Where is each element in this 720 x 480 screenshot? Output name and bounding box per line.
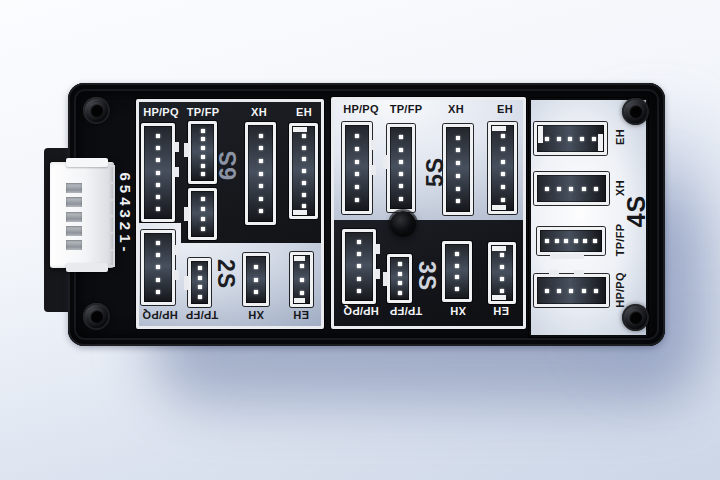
pin-dot [259,184,263,188]
pin-dot [201,146,205,150]
pin-dot [201,164,205,168]
label-5s-eh: EH [497,103,513,115]
pin-dot [355,134,359,138]
label-5s-tpfp: TP/FP [390,103,423,115]
pin-dot [501,172,505,176]
pin-dot [564,239,568,243]
pin-dot [198,285,202,289]
pin-dot [302,146,306,150]
pin-dot [545,289,549,293]
connector-3s-tpfp [387,254,412,303]
pin-dot [594,187,598,191]
pin-dot [156,290,160,294]
pin-dot [569,289,573,293]
pin-dot [456,174,460,178]
pin-dot [455,252,459,256]
pin-dot [201,217,205,221]
pin-dot [501,147,505,151]
connector-5s-hppq [342,122,372,214]
pin-dot [355,198,359,202]
pin-dot [156,207,160,211]
label-5s-xh: XH [448,103,464,115]
pin-dot [501,185,505,189]
pin-dot [302,181,306,185]
pin-dot [399,184,403,188]
pin-dot [66,240,82,250]
pin-dot [302,204,306,208]
pin-dot [500,253,504,257]
label-2s-xh: XH [248,309,264,321]
pin-dot [355,185,359,189]
pin-dot [201,137,205,141]
pin-dot [594,289,598,293]
pin-dot [593,239,597,243]
pin-dot [456,136,460,140]
pin-dot [66,226,82,236]
pin-dot [201,129,205,133]
pin-dot [201,227,205,231]
connector-6s-hppq [141,123,175,222]
pin-dot [156,146,160,150]
pin-dot [555,239,559,243]
pin-dot [300,278,304,282]
pin-dot [300,291,304,295]
connector-6s-tpfp-a [188,121,217,184]
pin-dot [302,157,306,161]
section-label-5s: 5S [422,157,449,187]
screw-top-left [83,97,110,124]
pin-dot [398,281,402,285]
pin-dot [66,183,82,193]
pin-dot [66,197,82,207]
pin-dot [399,197,403,201]
pin-dot [156,195,160,199]
pin-dot [254,278,258,282]
pin-dot [355,160,359,164]
label-4s-eh: EH [614,129,626,145]
balance-output-slots [66,183,82,250]
label-4s-hppq: HP/PQ [614,272,626,308]
section-label-6s: 6S [215,150,242,180]
pin-dot [456,161,460,165]
connector-2s-xh [243,253,269,306]
label-3s-xh: XH [450,305,466,317]
pin-dot [259,134,263,138]
connector-6s-eh [289,123,318,219]
section-label-4s: 4S [622,195,651,228]
connector-4s-xh [534,172,609,205]
connector-3s-eh [488,242,516,304]
pin-dot [545,187,549,191]
connector-6s-xh [245,122,276,225]
pin-dot [557,137,561,141]
pin-dot [500,277,504,281]
pin-dot [456,199,460,203]
pin-dot [399,160,403,164]
connector-3s-hppq [342,229,376,304]
pin-dot [357,252,361,256]
pin-dot [398,272,402,276]
pin-dot [259,146,263,150]
pin-dot [399,135,403,139]
label-6s-xh: XH [251,106,267,118]
pin-dot [254,290,258,294]
pin-dot [198,295,202,299]
label-3s-hppq: HP/PQ [343,305,379,317]
pin-dot [582,187,586,191]
pin-dot [582,289,586,293]
pin-dot [399,148,403,152]
connector-3s-xh [442,241,472,302]
label-6s-hppq: HP/PQ [143,106,179,118]
connector-4s-tpfp [537,227,605,255]
pin-dot [455,287,459,291]
connector-4s-hppq [534,274,609,307]
pin-dot [259,209,263,213]
connector-2s-hppq [141,230,175,305]
pin-dot [455,264,459,268]
pin-dot [399,172,403,176]
pin-dot [156,158,160,162]
label-2s-hppq: HP/PQ [142,309,178,321]
label-4s-tpfp: TP/FP [614,224,626,257]
pin-dot [569,187,573,191]
pin-dot [456,187,460,191]
pin-dot [302,169,306,173]
pin-dot [156,171,160,175]
pin-dot [500,289,504,293]
panel-5s-3s: HP/PQ TP/FP XH EH 5S 3S HP/PQ TP/FP XH E… [331,97,526,329]
balance-output-connector [50,162,114,268]
product-photo-scene: 654321- HP/PQ TP/FP XH EH 6S 2S HP/PQ TP… [0,0,720,480]
label-6s-tpfp: TP/FP [187,106,220,118]
connector-5s-tpfp [387,124,415,212]
pin-dot [568,137,572,141]
pin-dot [456,148,460,152]
pin-dot [259,159,263,163]
pin-dot [500,265,504,269]
pin-dot [501,160,505,164]
pin-dot [156,241,160,245]
connector-2s-tpfp [188,258,211,307]
pin-dot [580,137,584,141]
pin-dot [302,134,306,138]
connector-2s-eh [290,252,313,307]
pin-dot [557,289,561,293]
label-4s-xh: XH [614,180,626,196]
pin-dot [156,265,160,269]
pin-dot [545,239,549,243]
pin-dot [574,239,578,243]
parallel-charging-board: 654321- HP/PQ TP/FP XH EH 6S 2S HP/PQ TP… [68,83,665,346]
section-label-2s: 2S [212,259,239,289]
pin-dot [355,172,359,176]
connector-6s-tpfp-b [188,188,217,240]
section-label-3s: 3S [413,261,440,291]
pin-dot [398,262,402,266]
panel-6s-2s: HP/PQ TP/FP XH EH 6S 2S HP/PQ TP/FP XH E… [136,99,324,329]
connector-4s-eh [534,122,607,155]
pin-dot [357,289,361,293]
pin-dot [592,137,596,141]
pin-dot [545,137,549,141]
label-5s-hppq: HP/PQ [343,103,379,115]
pin-dot [156,253,160,257]
pin-numbering-marking: 654321- [117,172,134,255]
pin-dot [156,134,160,138]
pin-dot [501,198,505,202]
pin-dot [201,207,205,211]
label-2s-tpfp: TP/FP [186,309,219,321]
pin-dot [357,240,361,244]
pin-dot [156,183,160,187]
pin-dot [398,291,402,295]
screw-bottom-left [83,303,110,330]
pin-dot [357,277,361,281]
pin-dot [357,264,361,268]
pin-dot [201,172,205,176]
pin-dot [254,265,258,269]
pin-dot [201,197,205,201]
pin-dot [302,193,306,197]
panel-4s: EH XH TP/FP HP/PQ 4S [529,98,648,337]
pin-dot [259,197,263,201]
pin-dot [156,278,160,282]
screw-bottom-right [622,304,649,331]
pin-dot [259,172,263,176]
pin-dot [455,275,459,279]
label-3s-tpfp: TP/FP [390,305,423,317]
pin-dot [198,266,202,270]
label-3s-eh: EH [493,305,509,317]
pin-dot [501,134,505,138]
label-2s-eh: EH [293,309,309,321]
standoff-hole [390,211,416,237]
pin-dot [557,187,561,191]
pin-dot [198,276,202,280]
connector-5s-eh [488,122,517,214]
screw-top-right [622,98,649,125]
pin-dot [201,155,205,159]
pin-dot [355,147,359,151]
pin-dot [583,239,587,243]
pin-dot [300,264,304,268]
pin-scale-bracket [113,165,115,267]
pin-dot [66,212,82,222]
label-6s-eh: EH [296,106,312,118]
